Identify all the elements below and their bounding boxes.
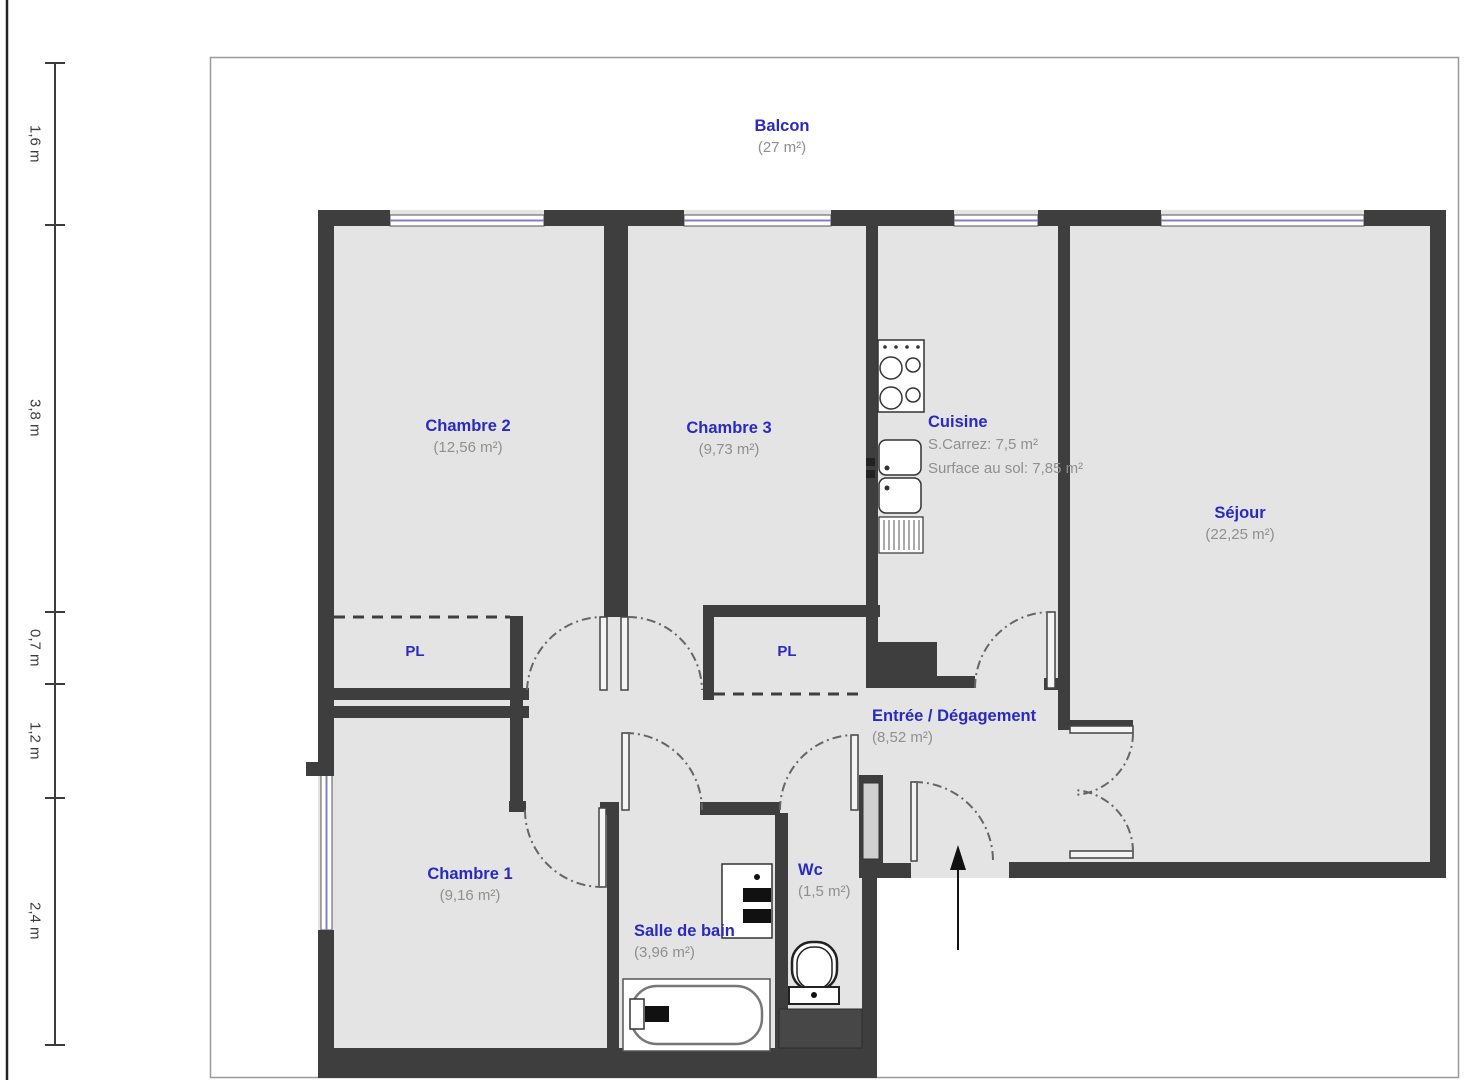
door-leaf-salle-de-bain [622,733,629,810]
door-leaf-chambre1 [599,808,606,887]
stove-icon [878,340,924,412]
dimension-ruler [45,63,65,1045]
wc-duct [779,1009,862,1048]
drainboard-icon [879,517,923,553]
door-leaf-chambre3 [621,617,628,690]
door-leaf-cuisine [1047,612,1055,688]
kitchen-duct [872,642,937,678]
door-leaf-wc [851,735,858,810]
door-leaf-sejour-upper [1070,726,1133,733]
door-leaf-sejour-lower [1070,851,1133,858]
door-leaf-chambre2 [600,617,607,690]
entry-pier-inset [863,783,879,859]
washbasin-icon [722,864,772,938]
door-leaf-entry [911,782,917,861]
floor-plan-page: Balcon (27 m²) Chambre 2 (12,56 m²) Cham… [0,0,1472,1080]
bathtub-icon [623,979,770,1051]
floor-plan-canvas [0,0,1472,1080]
